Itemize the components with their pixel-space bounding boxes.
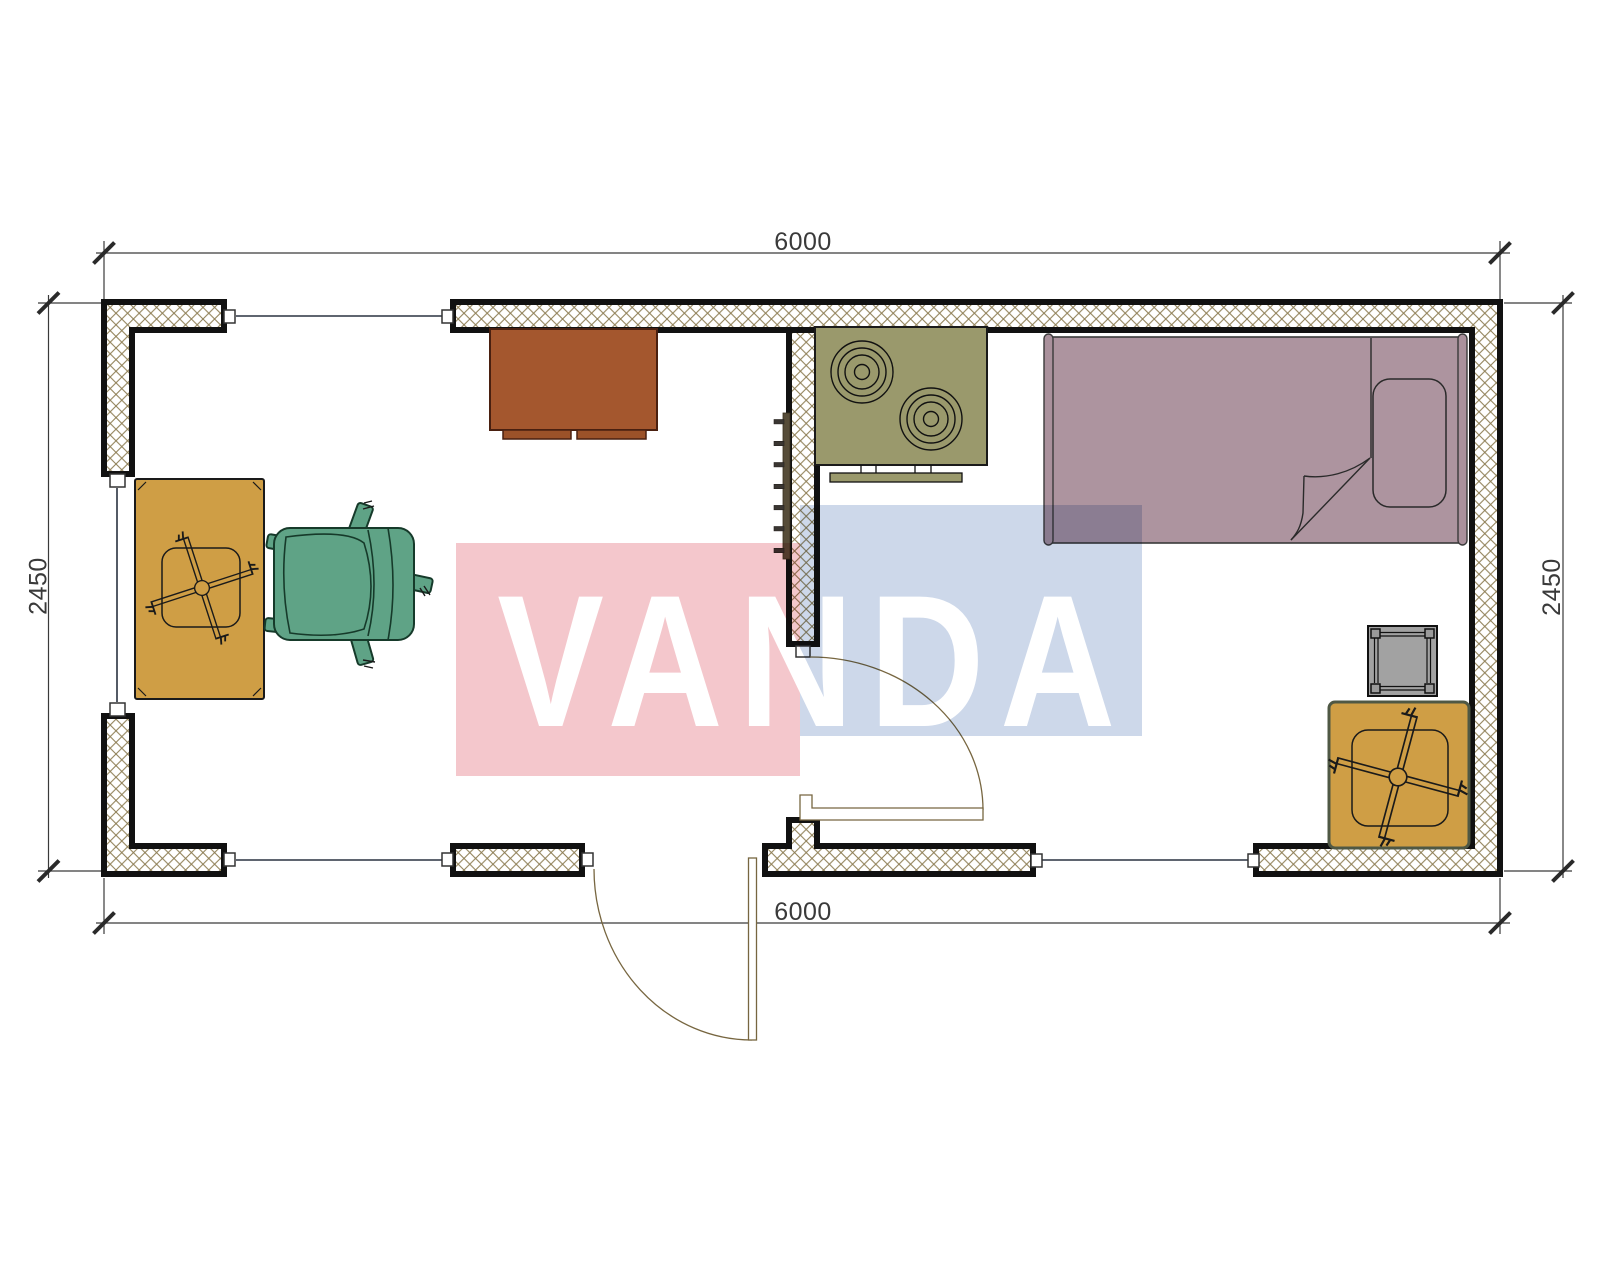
svg-text:2450: 2450	[1538, 558, 1566, 616]
svg-text:VANDA: VANDA	[497, 556, 1131, 766]
svg-text:2450: 2450	[25, 557, 53, 615]
svg-text:6000: 6000	[774, 898, 832, 926]
svg-text:6000: 6000	[774, 228, 832, 256]
